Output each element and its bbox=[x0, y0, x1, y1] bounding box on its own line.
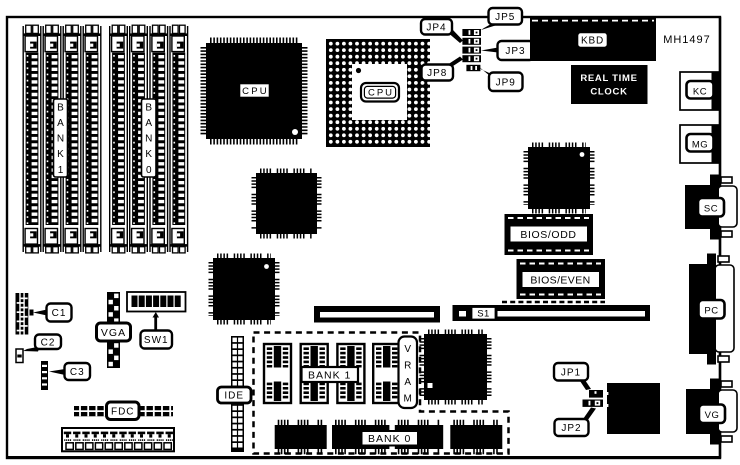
svg-text:B: B bbox=[145, 102, 152, 113]
svg-text:0: 0 bbox=[146, 165, 152, 176]
svg-text:JP4: JP4 bbox=[426, 22, 446, 33]
svg-text:JP2: JP2 bbox=[561, 423, 581, 434]
svg-text:B: B bbox=[57, 102, 64, 113]
svg-text:C2: C2 bbox=[41, 337, 56, 348]
svg-text:MG: MG bbox=[692, 139, 708, 150]
svg-text:V: V bbox=[404, 344, 411, 355]
svg-text:A: A bbox=[57, 118, 64, 129]
svg-text:PC: PC bbox=[704, 306, 718, 317]
svg-text:CPU: CPU bbox=[242, 86, 269, 97]
svg-text:KC: KC bbox=[693, 86, 707, 97]
svg-text:BANK 0: BANK 0 bbox=[368, 433, 411, 445]
svg-text:KBD: KBD bbox=[581, 36, 604, 47]
svg-text:C3: C3 bbox=[70, 367, 85, 378]
svg-text:CLOCK: CLOCK bbox=[590, 87, 627, 98]
svg-text:S1: S1 bbox=[477, 309, 490, 320]
svg-text:A: A bbox=[404, 377, 411, 388]
svg-text:JP9: JP9 bbox=[496, 77, 516, 88]
svg-text:JP1: JP1 bbox=[561, 367, 581, 378]
svg-text:1: 1 bbox=[58, 165, 64, 176]
svg-text:JP3: JP3 bbox=[505, 46, 525, 57]
svg-text:FDC: FDC bbox=[111, 406, 135, 417]
svg-text:VG: VG bbox=[705, 410, 720, 421]
svg-text:REAL TIME: REAL TIME bbox=[580, 73, 637, 84]
svg-text:K: K bbox=[145, 149, 152, 160]
svg-text:VGA: VGA bbox=[101, 327, 126, 339]
svg-text:CPU: CPU bbox=[368, 87, 394, 98]
svg-text:C1: C1 bbox=[52, 308, 67, 319]
svg-text:MH1497: MH1497 bbox=[663, 34, 711, 46]
svg-text:BANK 1: BANK 1 bbox=[308, 370, 351, 382]
svg-text:SW1: SW1 bbox=[144, 335, 169, 346]
svg-text:IDE: IDE bbox=[224, 391, 244, 402]
svg-text:K: K bbox=[57, 149, 64, 160]
svg-text:BIOS/EVEN: BIOS/EVEN bbox=[530, 275, 590, 287]
svg-text:A: A bbox=[145, 118, 152, 129]
svg-text:R: R bbox=[404, 360, 411, 371]
svg-text:N: N bbox=[57, 134, 64, 145]
svg-text:BIOS/ODD: BIOS/ODD bbox=[520, 229, 576, 241]
svg-text:JP5: JP5 bbox=[495, 12, 515, 23]
svg-text:M: M bbox=[404, 394, 412, 405]
svg-text:JP8: JP8 bbox=[427, 68, 447, 79]
svg-text:SC: SC bbox=[704, 204, 718, 215]
svg-text:N: N bbox=[145, 134, 152, 145]
